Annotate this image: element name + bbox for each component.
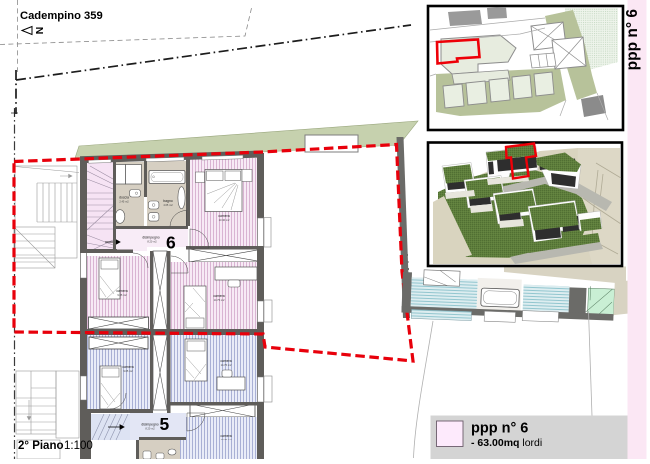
svg-text:doccia: doccia [119, 196, 129, 200]
svg-text:disimpegno: disimpegno [141, 423, 158, 427]
svg-text:N: N [33, 27, 45, 35]
svg-text:8.20 m2: 8.20 m2 [145, 427, 155, 431]
svg-text:8.20 m2: 8.20 m2 [147, 240, 157, 244]
svg-text:camera: camera [220, 434, 231, 438]
svg-text:bagno: bagno [163, 199, 173, 203]
svg-text:5: 5 [160, 414, 170, 434]
svg-text:9.05 m2: 9.05 m2 [123, 369, 133, 373]
svg-text:ppp n° 6: ppp n° 6 [624, 9, 641, 71]
svg-text:Cadempino 359: Cadempino 359 [20, 10, 103, 22]
svg-text:4.65 m2: 4.65 m2 [163, 203, 173, 207]
svg-text:camera: camera [220, 359, 231, 363]
svg-text:13.40 m2: 13.40 m2 [219, 218, 230, 222]
svg-text:9.05 m2: 9.05 m2 [117, 293, 127, 297]
svg-text:ppp n° 6: ppp n° 6 [471, 421, 528, 437]
svg-text:6: 6 [166, 233, 176, 253]
svg-text:camera: camera [218, 214, 229, 218]
svg-text:camera: camera [213, 294, 224, 298]
svg-text:camera: camera [122, 365, 133, 369]
svg-text:1:100: 1:100 [64, 440, 93, 452]
svg-text:- 63.00mq lordi: - 63.00mq lordi [471, 437, 542, 449]
svg-text:2.45 m2: 2.45 m2 [119, 200, 129, 204]
svg-text:disimpegno: disimpegno [142, 236, 159, 240]
svg-text:2° Piano: 2° Piano [18, 440, 64, 452]
svg-text:14.75 m2: 14.75 m2 [221, 363, 232, 367]
svg-text:camera: camera [116, 289, 127, 293]
svg-text:14.75 m2: 14.75 m2 [214, 298, 225, 302]
